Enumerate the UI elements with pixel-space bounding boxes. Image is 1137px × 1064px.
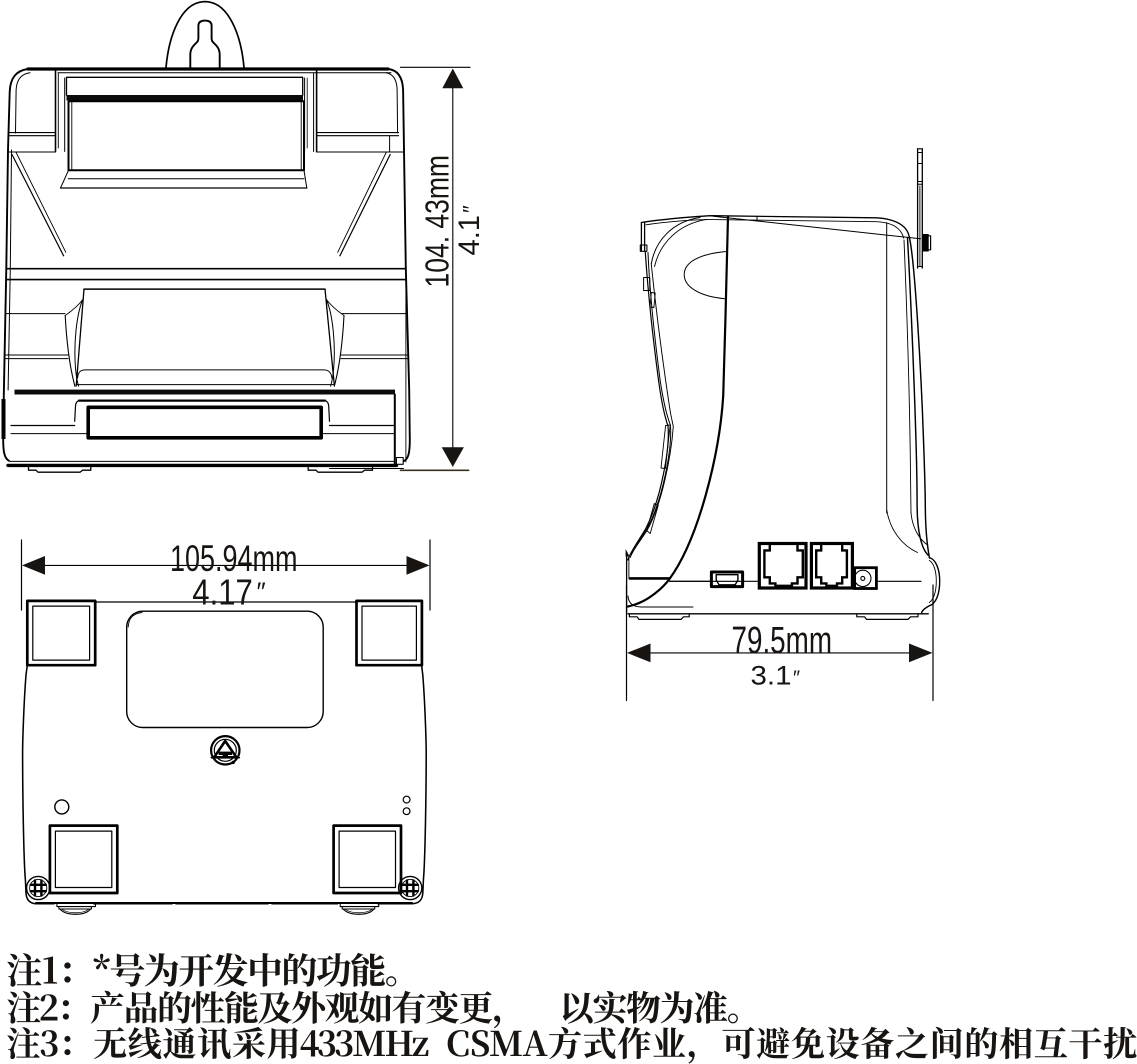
svg-text:″: ″ [459,205,484,213]
svg-text:4.1: 4.1 [453,215,486,256]
svg-text:79.5mm: 79.5mm [732,620,833,662]
svg-text:3.1: 3.1 [751,661,792,691]
svg-text:″: ″ [257,577,266,607]
svg-text:4.17: 4.17 [192,571,253,612]
svg-text:104. 43mm: 104. 43mm [419,155,456,288]
svg-text:″: ″ [793,668,800,690]
